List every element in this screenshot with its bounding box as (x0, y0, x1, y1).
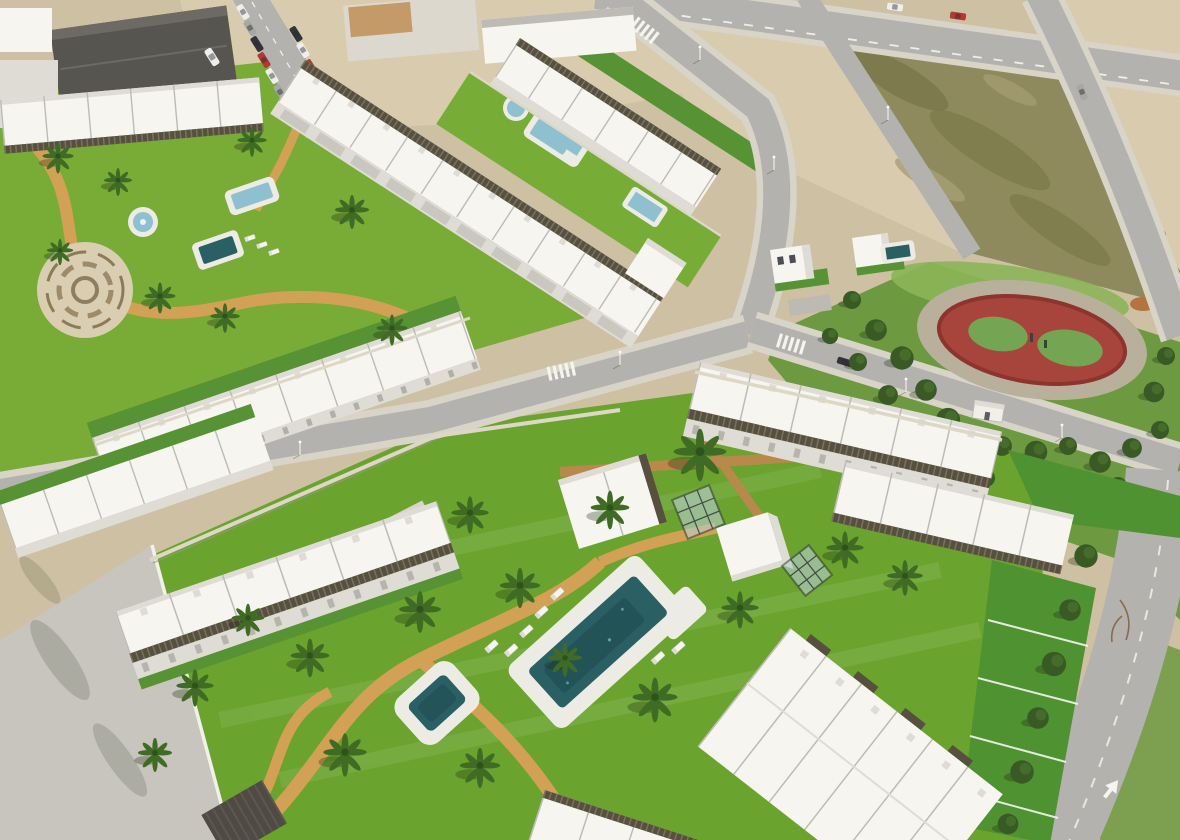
town-building (0, 8, 52, 52)
play-equipment (1044, 340, 1047, 348)
aerial-render (0, 0, 1180, 840)
play-equipment (1030, 333, 1033, 342)
round-fountain (128, 207, 158, 237)
town-building-tile-roof (348, 2, 412, 37)
scene-canvas (0, 0, 1180, 840)
